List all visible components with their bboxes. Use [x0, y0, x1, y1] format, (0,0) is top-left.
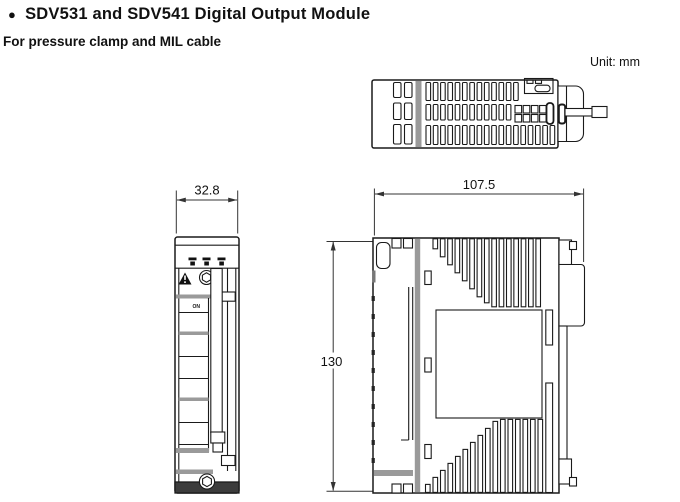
rear-stem: [559, 326, 567, 459]
front-width-value: 32.8: [194, 183, 219, 198]
lever-foot: [213, 443, 223, 452]
rear-hook-top: [570, 242, 577, 250]
latch-arm: [565, 109, 594, 117]
top-view: [372, 79, 607, 149]
front-view: ON: [175, 237, 239, 493]
dim-arrow-down: [331, 482, 336, 491]
dim-arrow-left: [375, 192, 384, 197]
dimension-drawing: 32.8 ON: [0, 0, 680, 502]
side-view-edge-tick: [372, 271, 375, 283]
front-view-slot-upper: [222, 292, 235, 301]
front-view-led-glyphs: [189, 258, 226, 266]
datasheet-page: ● SDV531 and SDV541 Digital Output Modul…: [0, 0, 680, 502]
dim-arrow-right: [574, 192, 583, 197]
release-lever: [211, 269, 222, 433]
lever-step: [211, 432, 225, 443]
latch-pivot: [559, 105, 565, 124]
dim-arrow-up: [331, 242, 336, 251]
side-view-label-area: [436, 310, 542, 418]
rear-connector-block: [559, 265, 585, 327]
rear-hook-bottom: [570, 478, 577, 487]
on-switch-label: ON: [193, 304, 201, 310]
bottom-screw: [199, 474, 214, 489]
top-view-divider: [416, 81, 422, 147]
depth-value: 107.5: [463, 177, 496, 192]
latch-tab: [592, 107, 607, 118]
dim-arrow-left: [177, 198, 186, 203]
front-view-slot-lower: [222, 456, 236, 466]
side-view: [372, 238, 585, 493]
front-view-gray-band-bottom: [176, 470, 213, 475]
front-view-gray-band-top: [176, 295, 213, 299]
front-width-dimension: 32.8: [176, 183, 237, 234]
side-view-divider: [415, 239, 420, 493]
height-value: 130: [321, 354, 343, 369]
terminal-gray-band: [176, 448, 209, 453]
height-dimension: 130: [317, 242, 373, 492]
dim-arrow-right: [228, 198, 237, 203]
side-view-gray-band: [374, 470, 413, 476]
